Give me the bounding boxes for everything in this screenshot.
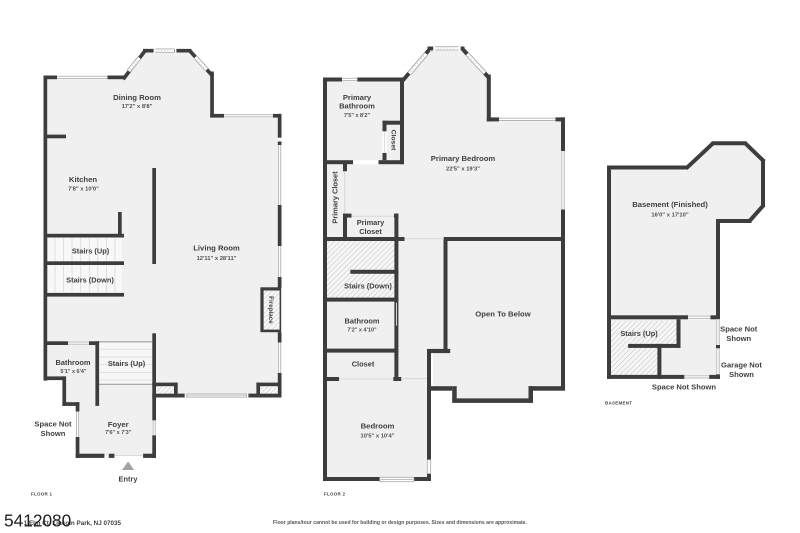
svg-text:Space Not: Space Not: [720, 325, 758, 334]
svg-text:Shown: Shown: [729, 370, 754, 379]
svg-text:Garage Not: Garage Not: [721, 361, 762, 370]
svg-text:Stairs (Up): Stairs (Up): [72, 246, 110, 255]
svg-text:7'5" x 8'2": 7'5" x 8'2": [344, 113, 371, 119]
svg-text:Entry: Entry: [119, 475, 139, 484]
svg-text:Stairs (Up): Stairs (Up): [108, 359, 146, 368]
svg-text:Bedroom: Bedroom: [361, 422, 395, 431]
svg-text:7'8" x 10'0": 7'8" x 10'0": [68, 186, 99, 192]
svg-text:Shown: Shown: [41, 429, 66, 438]
svg-text:Open To Below: Open To Below: [475, 310, 530, 319]
svg-text:Primary Bedroom: Primary Bedroom: [431, 154, 496, 163]
svg-text:Primary Closet: Primary Closet: [330, 171, 339, 224]
svg-text:Space Not Shown: Space Not Shown: [652, 382, 716, 391]
svg-text:Space Not: Space Not: [34, 420, 72, 429]
svg-text:Bathroom: Bathroom: [56, 358, 91, 367]
svg-text:17'2" x 8'8": 17'2" x 8'8": [122, 104, 153, 110]
svg-text:Dining Room: Dining Room: [113, 93, 161, 102]
svg-text:FLOOR 1: FLOOR 1: [31, 492, 52, 497]
svg-text:Closet: Closet: [352, 360, 375, 369]
svg-text:Floor plans/tour cannot be use: Floor plans/tour cannot be used for buil…: [273, 520, 527, 526]
svg-text:16'0" x 17'10": 16'0" x 17'10": [651, 212, 689, 218]
svg-text:12'11" x 28'11": 12'11" x 28'11": [197, 256, 237, 262]
svg-text:Bathroom: Bathroom: [345, 317, 380, 326]
svg-text:Living Room: Living Room: [193, 244, 240, 253]
svg-text:5412080: 5412080: [4, 511, 71, 531]
svg-text:22'5" x 19'3": 22'5" x 19'3": [446, 167, 480, 173]
svg-text:5'1" x 6'4": 5'1" x 6'4": [60, 369, 87, 375]
svg-text:Bathroom: Bathroom: [339, 102, 375, 111]
svg-text:7'2" x 4'10": 7'2" x 4'10": [347, 328, 377, 334]
svg-text:Closet: Closet: [390, 130, 397, 152]
svg-text:Primary: Primary: [357, 218, 385, 227]
svg-text:Shown: Shown: [726, 334, 751, 343]
svg-text:BASEMENT: BASEMENT: [605, 401, 632, 406]
svg-text:10'5" x 10'4": 10'5" x 10'4": [360, 433, 394, 439]
svg-text:Basement (Finished): Basement (Finished): [632, 200, 708, 209]
svg-text:Stairs (Down): Stairs (Down): [66, 276, 114, 285]
svg-text:Stairs (Down): Stairs (Down): [344, 282, 392, 291]
svg-text:Stairs (Up): Stairs (Up): [620, 329, 658, 338]
svg-text:Closet: Closet: [359, 227, 382, 236]
svg-text:FLOOR 2: FLOOR 2: [324, 492, 345, 497]
svg-text:Kitchen: Kitchen: [69, 175, 97, 184]
svg-text:7'6" x 7'3": 7'6" x 7'3": [105, 430, 132, 436]
svg-text:Fireplace: Fireplace: [267, 296, 274, 324]
svg-text:Foyer: Foyer: [108, 420, 129, 429]
